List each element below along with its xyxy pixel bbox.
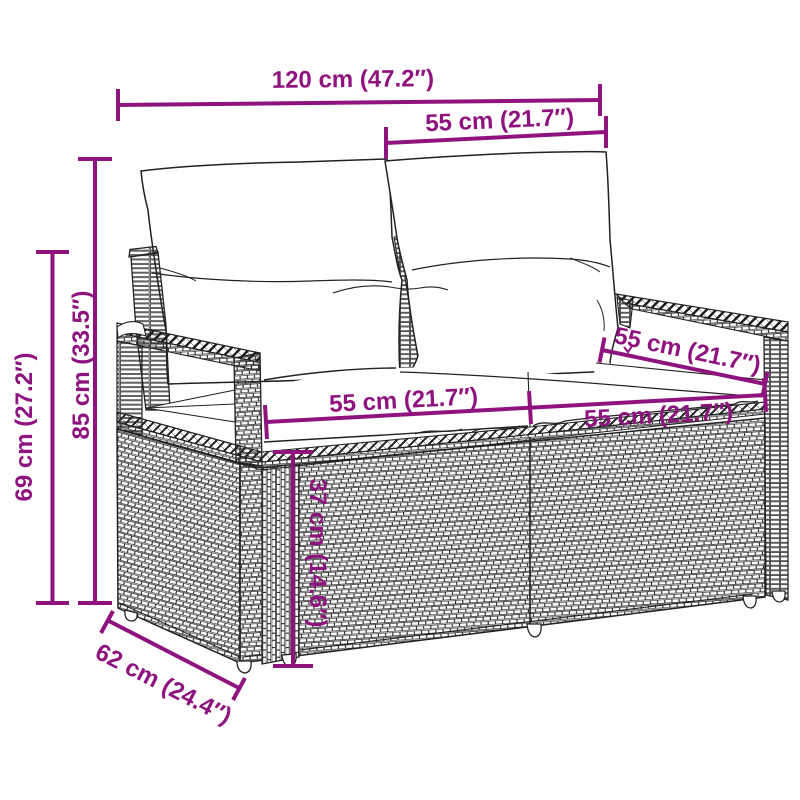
svg-text:69 cm (27.2″): 69 cm (27.2″) bbox=[11, 353, 38, 502]
svg-text:85 cm (33.5″): 85 cm (33.5″) bbox=[68, 291, 95, 440]
svg-text:37 cm (14.6″): 37 cm (14.6″) bbox=[304, 479, 331, 628]
svg-text:120 cm (47.2″): 120 cm (47.2″) bbox=[272, 65, 435, 94]
